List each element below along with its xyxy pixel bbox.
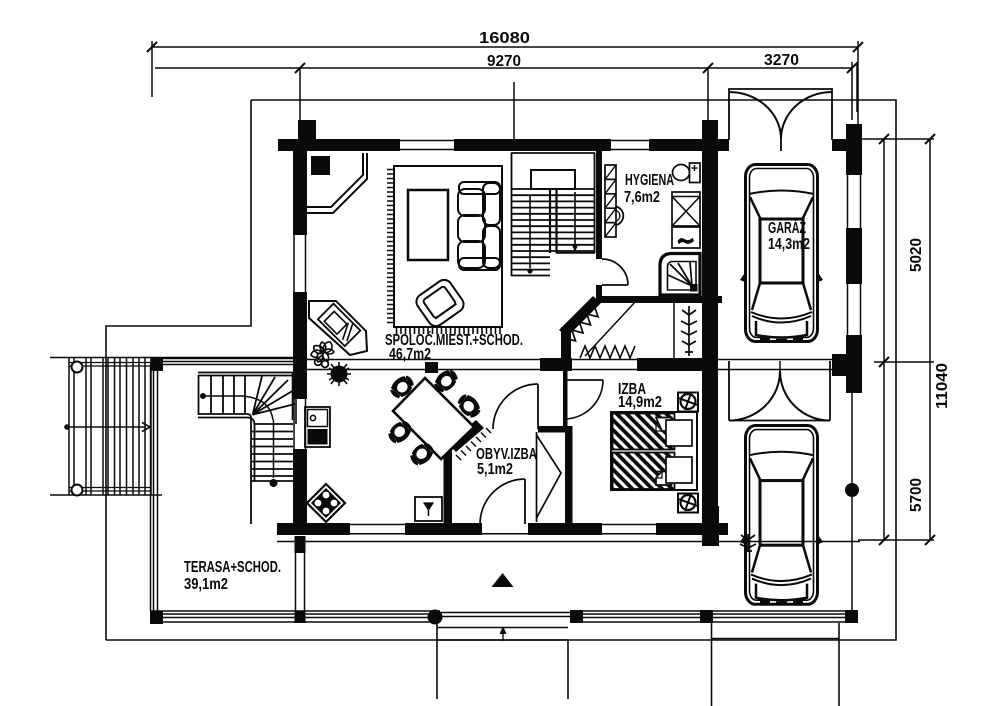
svg-text:3270: 3270 xyxy=(764,52,799,69)
svg-text:14,9m2: 14,9m2 xyxy=(618,394,662,411)
svg-text:46,7m2: 46,7m2 xyxy=(389,346,431,363)
svg-text:7,6m2: 7,6m2 xyxy=(624,189,660,206)
svg-text:HYGIENA: HYGIENA xyxy=(625,172,674,189)
svg-text:9270: 9270 xyxy=(487,53,521,70)
svg-text:11040: 11040 xyxy=(934,363,951,409)
svg-text:5700: 5700 xyxy=(908,478,925,512)
svg-text:TERASA+SCHOD.: TERASA+SCHOD. xyxy=(184,559,281,576)
svg-text:5,1m2: 5,1m2 xyxy=(477,461,513,478)
svg-text:16080: 16080 xyxy=(479,30,530,47)
svg-text:39,1m2: 39,1m2 xyxy=(184,576,228,593)
svg-text:14,3m2: 14,3m2 xyxy=(768,236,810,253)
svg-text:GARÁŽ: GARÁŽ xyxy=(768,218,806,237)
svg-text:5020: 5020 xyxy=(908,238,925,272)
